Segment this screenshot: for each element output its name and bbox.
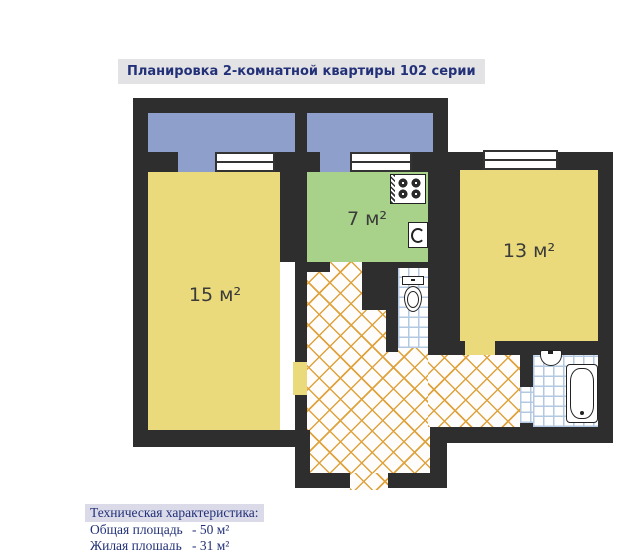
wall: [133, 430, 310, 447]
corridor-floor: [428, 352, 520, 427]
wall: [428, 341, 465, 355]
wall: [133, 98, 448, 113]
tech-row-label: Жилая площадь: [90, 538, 192, 550]
wall: [386, 262, 398, 352]
wall: [133, 152, 178, 172]
stove-icon: [390, 174, 426, 204]
wall: [295, 262, 307, 362]
balcony-right-door-opening: [320, 152, 350, 172]
tech-row-total-area: Общая площадь - 50 м²: [90, 522, 229, 538]
balcony-left-door-opening: [178, 152, 215, 172]
room-15-door-opening: [293, 362, 307, 395]
window: [215, 152, 275, 172]
floor-plan-page: Планировка 2-комнатной квартиры 102 сери…: [0, 0, 630, 550]
room-13-door-opening: [465, 341, 495, 355]
wall: [133, 98, 148, 447]
balcony-left-floor: [148, 113, 295, 152]
balcony-right-floor: [307, 113, 433, 152]
wall: [448, 152, 483, 170]
toilet-icon: [402, 276, 424, 285]
bathroom-door-opening: [520, 387, 533, 423]
wall: [598, 152, 613, 443]
floor-plan: 15 м² 7 м² 13 м²: [0, 0, 630, 550]
tech-row-living-area: Жилая площадь - 31 м²: [90, 538, 229, 550]
window: [350, 152, 412, 172]
wall: [295, 473, 350, 488]
room-15-area-label: 15 м²: [160, 284, 270, 306]
wall: [295, 395, 307, 430]
bathtub-drain: [580, 411, 584, 415]
window: [483, 150, 558, 170]
tech-row-value: - 50 м²: [192, 522, 229, 538]
wall: [398, 262, 428, 268]
wall: [430, 427, 613, 443]
tech-row-value: - 31 м²: [192, 538, 229, 550]
tech-row-label: Общая площадь: [90, 522, 192, 538]
wall: [307, 262, 330, 272]
bathtub-icon: [566, 364, 598, 423]
wall: [280, 170, 307, 262]
wall: [520, 341, 533, 387]
kitchen-area-label: 7 м²: [312, 208, 422, 230]
wall: [275, 152, 320, 172]
tech-heading: Техническая характеристика:: [85, 504, 264, 522]
room-13-area-label: 13 м²: [474, 240, 584, 262]
entrance-door-opening: [350, 473, 388, 490]
wall: [388, 473, 447, 488]
wall: [428, 152, 460, 352]
